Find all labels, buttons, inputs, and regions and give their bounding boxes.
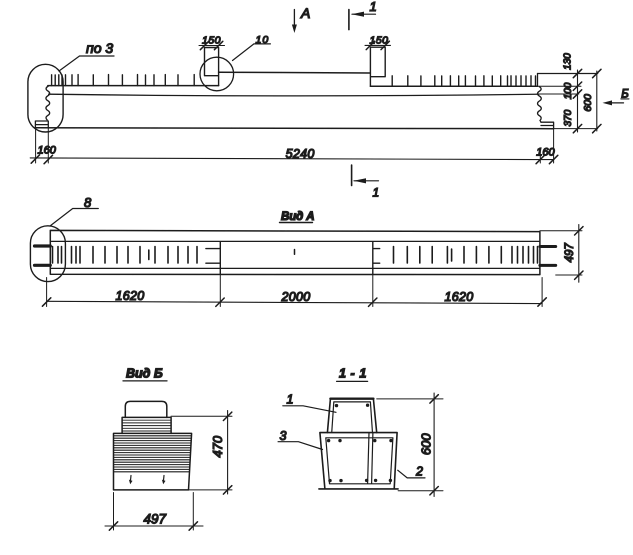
svg-text:600: 600 xyxy=(582,94,594,112)
svg-text:1620: 1620 xyxy=(116,289,145,303)
svg-text:8: 8 xyxy=(84,195,92,210)
svg-text:1-1: 1-1 xyxy=(339,367,371,381)
svg-text:497: 497 xyxy=(564,243,576,263)
svg-text:370: 370 xyxy=(563,109,574,126)
svg-text:по 3: по 3 xyxy=(86,40,113,56)
svg-text:1620: 1620 xyxy=(445,290,474,304)
svg-text:3: 3 xyxy=(280,429,287,443)
svg-text:470: 470 xyxy=(210,435,225,457)
svg-text:10: 10 xyxy=(256,34,270,46)
svg-text:Вид А: Вид А xyxy=(281,211,314,223)
svg-text:А: А xyxy=(300,5,310,21)
svg-text:497: 497 xyxy=(144,512,167,527)
svg-text:600: 600 xyxy=(419,433,434,455)
svg-text:160: 160 xyxy=(536,147,555,159)
svg-text:5240: 5240 xyxy=(286,147,315,161)
svg-text:100: 100 xyxy=(563,82,574,99)
svg-text:Вид Б: Вид Б xyxy=(126,367,163,381)
svg-text:130: 130 xyxy=(562,53,573,70)
svg-text:160: 160 xyxy=(38,145,57,157)
svg-text:150: 150 xyxy=(370,35,389,47)
svg-text:150: 150 xyxy=(202,34,221,46)
svg-text:1: 1 xyxy=(373,186,380,200)
svg-text:2000: 2000 xyxy=(281,290,311,304)
svg-text:2: 2 xyxy=(415,465,423,479)
svg-text:1: 1 xyxy=(287,393,294,407)
svg-text:1: 1 xyxy=(370,0,377,14)
